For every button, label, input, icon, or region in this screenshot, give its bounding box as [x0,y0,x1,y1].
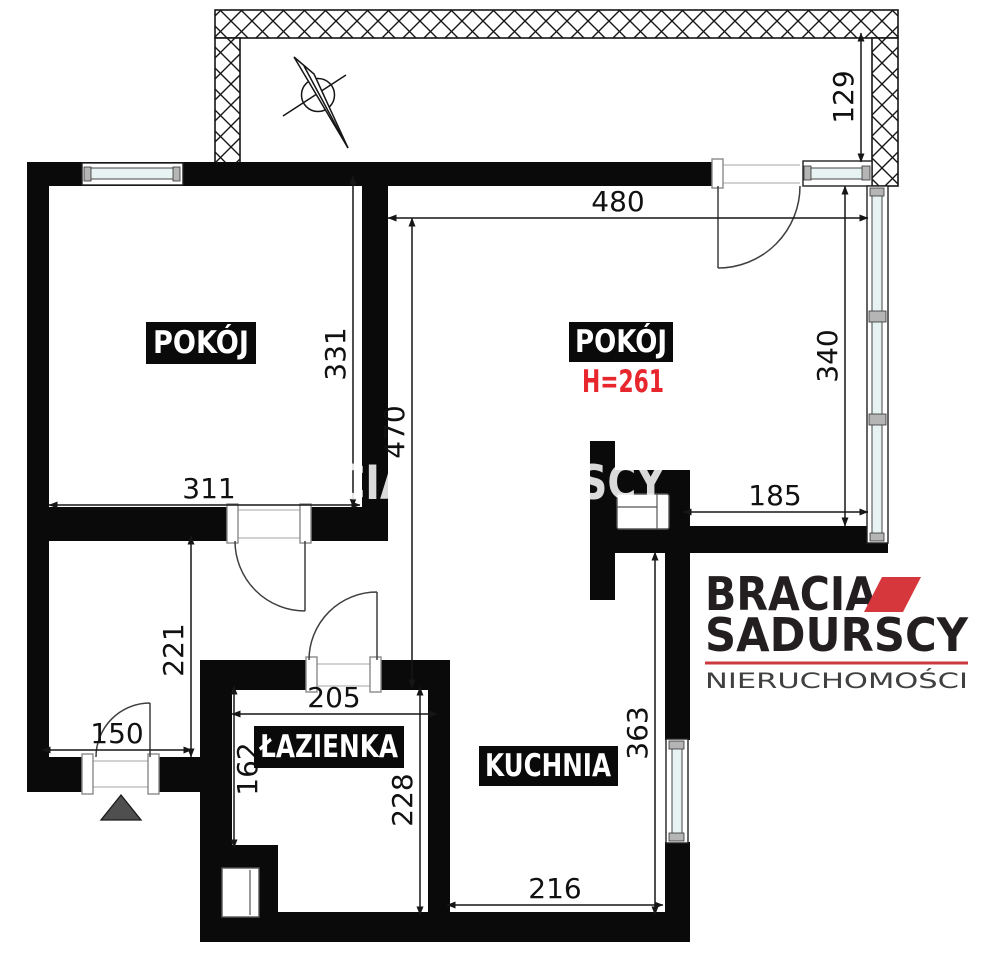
wall-kitchen-east-a [665,526,690,740]
entrance-arrow [101,795,141,820]
dim-185: 185 [748,479,801,512]
room-height-note: H=261 [582,364,664,400]
kitchen-label: KUCHNIA [485,748,611,784]
room-right-label: POKÓJ [575,323,667,360]
wall-kitchen-east-b [665,842,690,915]
dim-216: 216 [528,872,581,905]
floor-plan-canvas: 480 311 185 150 205 216 129 331 470 340 … [0,0,991,960]
window-kitchen [666,739,688,843]
wall-rightroom-bottom [614,526,888,553]
wall-left-exterior [27,162,49,792]
wall-bath-east [428,660,450,915]
balcony [215,10,898,186]
balcony-wall-top [215,10,898,38]
wall-leftroom-bottom-b [301,507,388,541]
agency-logo: BRACIA SADURSCY NIERUCHOMOŚCI [705,567,969,693]
washing-machine [222,868,259,917]
floor-plan: 480 311 185 150 205 216 129 331 470 340 … [0,0,991,960]
logo-brand-bottom: SADURSCY [705,608,969,662]
dim-221: 221 [157,623,190,676]
wall-leftroom-bottom-a [27,507,233,541]
dim-129: 129 [827,70,860,123]
dim-228: 228 [386,773,419,826]
dim-205: 205 [307,681,360,714]
window-right-wall [867,186,888,543]
dim-150: 150 [90,717,143,750]
balcony-wall-right [872,38,898,186]
window-balcony-door [803,161,872,186]
left-room-door [235,541,305,611]
dim-470: 470 [378,405,411,458]
wall-bottom [200,912,690,942]
bathroom-door [309,592,377,660]
balcony-wall-left [215,38,240,164]
dim-480: 480 [591,185,644,218]
wall-bath-top-a [200,660,313,690]
walls [27,162,888,942]
north-arrow-icon [283,57,348,148]
dim-340: 340 [811,329,844,382]
logo-tagline: NIERUCHOMOŚCI [705,668,968,693]
balcony-door [718,186,800,268]
window-left-room [82,163,183,185]
dim-363: 363 [621,706,654,759]
dim-331: 331 [319,327,352,380]
bathroom-label: ŁAZIENKA [258,729,398,765]
dim-311: 311 [182,472,235,505]
watermark-text: BRACIA SADURSCY [245,456,666,511]
room-left-label: POKÓJ [153,324,249,361]
